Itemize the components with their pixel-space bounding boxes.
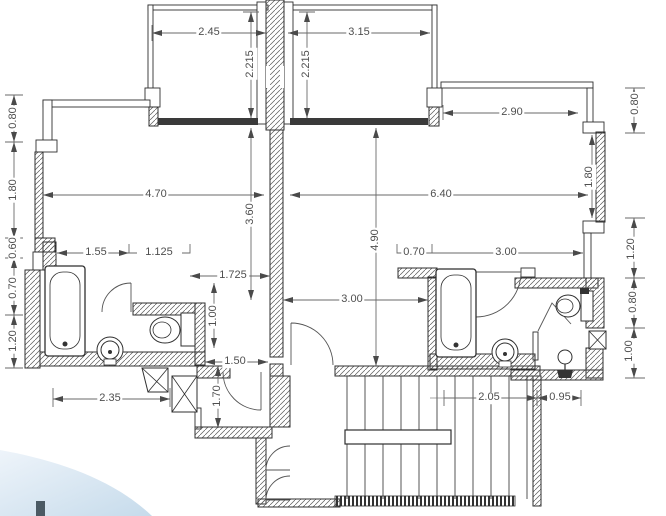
closet-door-lower [266,476,290,500]
right-terrace-return [587,88,593,123]
right-hall-door [291,323,333,365]
toilet-left [150,313,195,346]
stair-landing [345,430,451,444]
left-window-band-dark [158,118,258,125]
toilet-right [556,288,593,321]
shaft-right [589,331,606,349]
left-window-box [33,252,43,270]
bath-door-stub [521,268,535,277]
right-window-band [584,233,591,278]
top-right-room-top-wall [284,5,437,10]
left-bath-outer-wall [25,270,40,368]
top-right-room-right-wall [432,5,437,89]
party-wall-top [266,0,284,130]
floor-plan-drawing [0,0,666,516]
window-bands [158,118,428,125]
right-room-corner-block [429,107,439,126]
staircase [335,376,527,506]
closet-wall [256,438,266,504]
bathtub-right [436,269,476,357]
photo-corner-background [0,450,152,516]
left-room-corner-block [149,107,158,126]
closet-door-upper [266,446,290,470]
left-terrace-band [43,100,150,107]
pedestal-basin [557,350,573,378]
right-window-band-dark [290,118,428,125]
left-outer-wall-upper [35,152,43,238]
floor-plan-canvas: 2.45 3.15 2.215 2.215 2.90 0.80 1.80 0.6… [0,0,666,516]
left-rear-wall [197,366,230,378]
shaft-left-b [172,376,197,412]
shaft-left-a [142,368,168,392]
party-wall-low [270,364,283,376]
right-bottom-wall [511,370,603,380]
right-column-block-2 [583,221,604,233]
party-wall-cavity-right [284,2,293,124]
right-outer-wall [596,132,605,222]
hatched-walls [25,0,605,507]
left-column-block [36,140,57,152]
top-left-room-left-wall [148,5,153,89]
right-bath-door [476,272,521,317]
bathtub-left [45,266,85,356]
right-terrace-band [441,82,593,88]
left-terrace-return [43,100,52,141]
vestibule-band [195,427,272,438]
top-left-room-top-wall [148,5,268,10]
party-wall-mid [270,130,283,357]
party-wall-cavity-left [257,2,266,124]
party-wall-bottom [270,376,290,427]
left-toilet-wall [195,303,205,365]
right-pier [427,88,442,107]
stair-cut-band [335,496,515,506]
left-bath-door [102,283,131,312]
right-column-block-1 [583,122,604,133]
